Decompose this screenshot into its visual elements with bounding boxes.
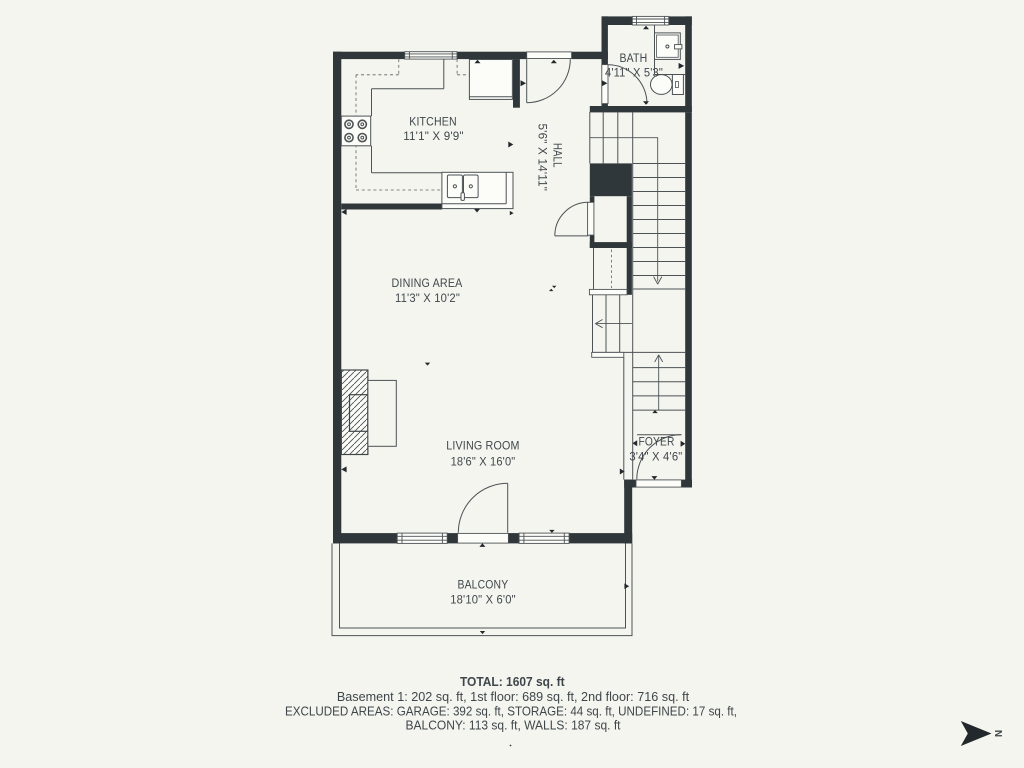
svg-text:BALCONY: 113 sq. ft, WALLS: 18: BALCONY: 113 sq. ft, WALLS: 187 sq. ft <box>406 719 621 733</box>
svg-text:18'10" X 6'0": 18'10" X 6'0" <box>450 593 516 607</box>
svg-text:11'3" X 10'2": 11'3" X 10'2" <box>395 291 460 305</box>
svg-text:5'6" X 14'11": 5'6" X 14'11" <box>536 123 550 191</box>
svg-text:KITCHEN: KITCHEN <box>409 114 457 128</box>
svg-text:BALCONY: BALCONY <box>458 577 509 591</box>
svg-text:4'11" X 5'3": 4'11" X 5'3" <box>605 66 663 80</box>
svg-text:18'6" X 16'0": 18'6" X 16'0" <box>451 454 516 468</box>
svg-text:FOYER: FOYER <box>639 434 675 448</box>
svg-text:3'4" X 4'6": 3'4" X 4'6" <box>629 450 682 464</box>
svg-text:Basement 1: 202 sq. ft, 1st fl: Basement 1: 202 sq. ft, 1st floor: 689 s… <box>337 690 690 704</box>
svg-text:BATH: BATH <box>619 51 647 65</box>
svg-text:11'1" X 9'9": 11'1" X 9'9" <box>403 129 464 143</box>
svg-text:TOTAL: 1607 sq. ft: TOTAL: 1607 sq. ft <box>460 675 565 689</box>
svg-text:DINING AREA: DINING AREA <box>392 276 463 290</box>
svg-text:EXCLUDED AREAS: GARAGE: 392 sq: EXCLUDED AREAS: GARAGE: 392 sq. ft, STOR… <box>285 705 737 719</box>
svg-text:HALL: HALL <box>551 143 565 168</box>
svg-text:N: N <box>992 730 1003 737</box>
svg-text:LIVING ROOM: LIVING ROOM <box>446 439 519 453</box>
